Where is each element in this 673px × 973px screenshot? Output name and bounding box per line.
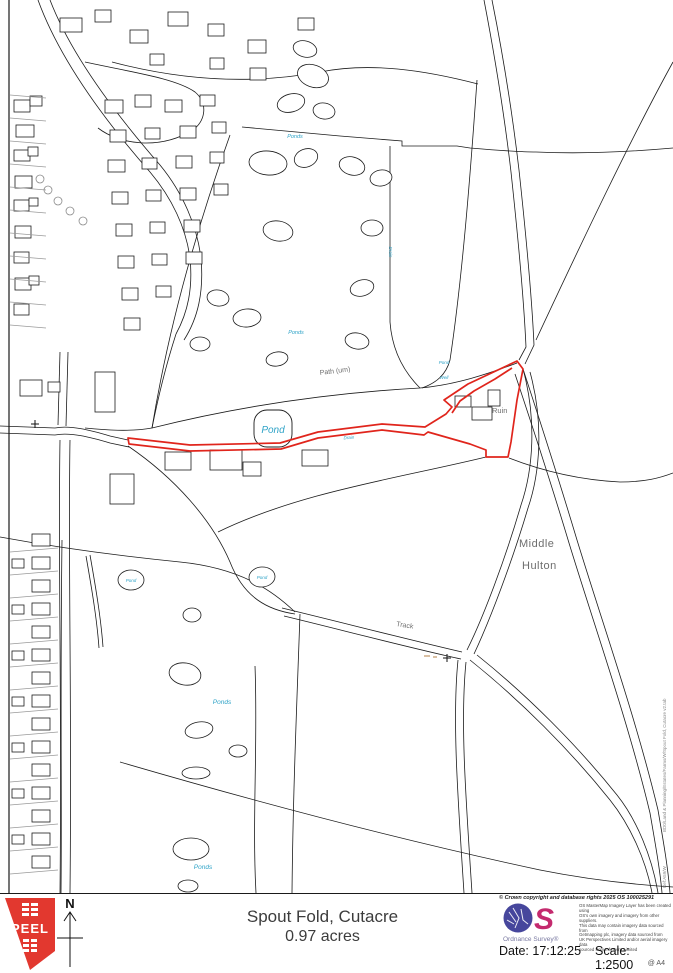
scale-label: Scale: xyxy=(595,944,630,958)
label-well-ne: Well xyxy=(440,375,450,380)
map-canvas: Ponds Ponds Pond Drain Drain Pond Well R… xyxy=(0,0,673,893)
label-track: Track xyxy=(396,621,415,631)
label-pond-sw-1: Pond xyxy=(126,578,137,583)
label-hulton: Hulton xyxy=(522,560,557,572)
margin-ref-code: Ref:A59/W xyxy=(662,865,667,888)
crown-copyright-text: © Crown copyright and database rights 20… xyxy=(499,895,671,901)
map-sheet: Ponds Ponds Pond Drain Drain Pond Well R… xyxy=(0,0,673,973)
map-area-value: 0.97 acres xyxy=(155,927,490,947)
margin-file-reference: BD0/Land & Planning/Estates/Farms/W/Spou… xyxy=(662,698,667,832)
svg-text:S: S xyxy=(534,903,554,935)
footer: PEEL N Spout Fold, Cutacre 0.97 acres © … xyxy=(0,893,673,973)
label-ponds-south-1: Ponds xyxy=(213,699,232,706)
label-pond-sw-2: Pond xyxy=(257,575,268,580)
map-title-block: Spout Fold, Cutacre 0.97 acres xyxy=(155,907,490,947)
map-terrace-houses xyxy=(12,534,50,868)
label-ruin: Ruin xyxy=(492,406,507,415)
peel-logo-text: PEEL xyxy=(11,921,49,936)
north-arrow-icon xyxy=(57,912,83,967)
paper-size-note: @ A4 xyxy=(648,960,665,967)
label-ponds-north-2: Ponds xyxy=(288,330,304,336)
map-title: Spout Fold, Cutacre xyxy=(155,907,490,927)
map: Ponds Ponds Pond Drain Drain Pond Well R… xyxy=(0,0,673,893)
map-roads xyxy=(0,0,670,893)
ordnance-survey-logo-icon: S xyxy=(501,902,563,935)
north-arrow: N xyxy=(52,895,92,971)
footer-right-block: © Crown copyright and database rights 20… xyxy=(495,893,673,973)
ordnance-survey-name: Ordnance Survey® xyxy=(503,936,558,943)
scale-value: 1:2500 xyxy=(595,958,633,972)
label-drain-vertical: Drain xyxy=(388,247,393,258)
map-linework xyxy=(0,62,673,893)
date-value: 17:12:25 xyxy=(532,944,581,958)
north-label: N xyxy=(65,896,74,911)
scale-field: Scale: 1:2500 xyxy=(595,944,671,972)
label-ponds-south-2: Ponds xyxy=(194,864,213,871)
tree-symbols xyxy=(36,175,87,225)
label-middle: Middle xyxy=(519,538,554,550)
date-label: Date: xyxy=(499,944,529,958)
date-field: Date: 17:12:25 xyxy=(499,944,581,958)
label-pond-ne: Pond xyxy=(439,360,450,365)
map-plot-lines xyxy=(10,95,58,874)
label-path-um: Path (um) xyxy=(319,366,350,377)
label-pond-main: Pond xyxy=(261,425,285,436)
label-ponds-north-1: Ponds xyxy=(287,134,303,140)
benchmark-marks xyxy=(424,656,437,657)
peel-logo: PEEL xyxy=(4,897,56,971)
label-drain-strip: Drain xyxy=(343,435,355,441)
